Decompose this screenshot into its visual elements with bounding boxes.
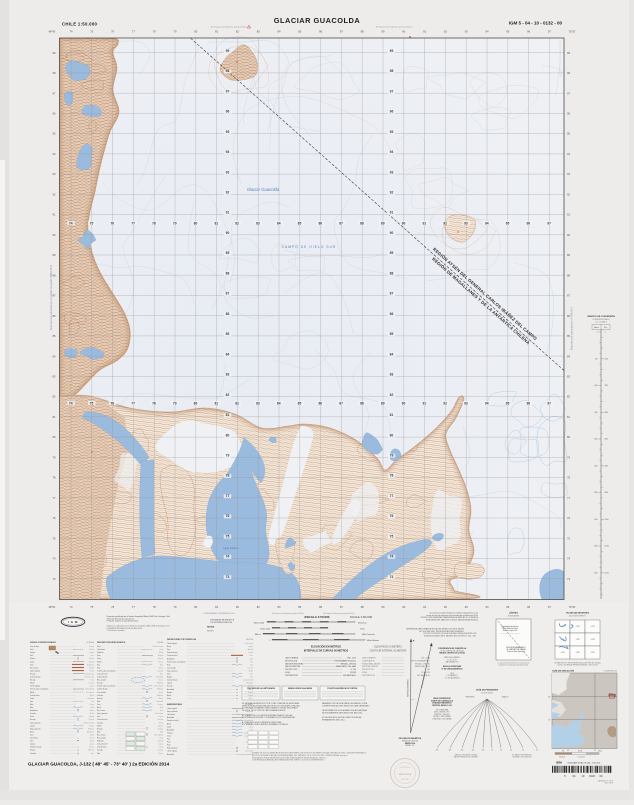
svg-text:81: 81 bbox=[226, 413, 230, 417]
svg-text:MODELO IGRF (WMM): MODELO IGRF (WMM) bbox=[433, 716, 451, 718]
svg-text:75: 75 bbox=[90, 605, 93, 609]
svg-text:PENDIENTE: PENDIENTE bbox=[466, 697, 475, 699]
svg-text:92: 92 bbox=[226, 191, 230, 195]
svg-text:89: 89 bbox=[382, 605, 385, 609]
svg-text:Muelle: Muelle bbox=[97, 725, 102, 727]
svg-text:3200: 3200 bbox=[605, 385, 609, 387]
svg-text:92: 92 bbox=[53, 192, 56, 196]
svg-text:73°30': 73°30' bbox=[568, 606, 576, 609]
svg-text:Mina: Mina bbox=[91, 707, 94, 709]
svg-text:86: 86 bbox=[226, 312, 230, 316]
svg-text:Canal: Canal bbox=[30, 698, 35, 700]
svg-text:81: 81 bbox=[214, 222, 218, 226]
svg-text:Población: Población bbox=[88, 728, 94, 730]
svg-text:GLACIAR GUACOLDA: GLACIAR GUACOLDA bbox=[274, 16, 361, 25]
svg-text:76: 76 bbox=[567, 516, 570, 520]
svg-text:13100: 13100 bbox=[605, 546, 609, 548]
svg-text:91: 91 bbox=[423, 30, 426, 34]
svg-text:94: 94 bbox=[485, 402, 489, 406]
svg-text:86: 86 bbox=[390, 312, 394, 316]
svg-text:89: 89 bbox=[381, 222, 385, 226]
svg-text:77: 77 bbox=[132, 30, 135, 34]
svg-text:Laguna: Laguna bbox=[89, 652, 94, 654]
svg-text:79: 79 bbox=[173, 402, 177, 406]
svg-text:Mina: Mina bbox=[97, 731, 100, 733]
svg-text:Cascada: Cascada bbox=[158, 670, 164, 672]
svg-text:84: 84 bbox=[53, 354, 56, 358]
svg-text:88: 88 bbox=[361, 30, 364, 34]
svg-text:Escarpe: Escarpe bbox=[158, 725, 163, 727]
svg-text:93: 93 bbox=[53, 172, 56, 176]
svg-text:84: 84 bbox=[278, 605, 281, 609]
svg-text:99: 99 bbox=[567, 51, 570, 55]
svg-text:85: 85 bbox=[226, 332, 230, 336]
svg-text:82: 82 bbox=[236, 605, 239, 609]
svg-text:83: 83 bbox=[257, 30, 260, 34]
svg-text:90: 90 bbox=[402, 222, 406, 226]
svg-text:J-122: J-122 bbox=[576, 626, 580, 628]
svg-text:79: 79 bbox=[174, 605, 177, 609]
svg-text:NORTE GEOGRÁFICO: NORTE GEOGRÁFICO bbox=[407, 678, 410, 696]
svg-text:99: 99 bbox=[53, 51, 56, 55]
svg-text:IGM 5 - 04 - 10 - 0132 - 00: IGM 5 - 04 - 10 - 0132 - 00 bbox=[509, 21, 563, 26]
svg-text:Laguna: Laguna bbox=[248, 646, 253, 648]
svg-text:GLACIAR GUACOLDA, J-132 ( 48°: GLACIAR GUACOLDA, J-132 ( 48° 45' - 73° … bbox=[28, 760, 170, 767]
svg-text:Pies: Pies bbox=[604, 327, 607, 329]
svg-text:LEY 2014 DEL IGM Y SUS MODIFIC: LEY 2014 DEL IGM Y SUS MODIFICACIONES VI… bbox=[419, 630, 464, 633]
svg-text:90: 90 bbox=[567, 233, 570, 237]
svg-text:96: 96 bbox=[226, 110, 230, 114]
svg-text:74: 74 bbox=[70, 30, 73, 34]
svg-text:Laguna: Laguna bbox=[167, 683, 172, 685]
svg-text:80: 80 bbox=[390, 433, 394, 437]
svg-text:78: 78 bbox=[153, 605, 156, 609]
svg-text:81: 81 bbox=[215, 605, 218, 609]
svg-text:Torre: Torre bbox=[250, 677, 253, 679]
svg-text:NOTAS: NOTAS bbox=[207, 625, 215, 628]
svg-text:GUÍA DE PENDIENTE: GUÍA DE PENDIENTE bbox=[476, 689, 499, 692]
svg-text:87: 87 bbox=[339, 402, 343, 406]
svg-text:94: 94 bbox=[53, 152, 56, 156]
svg-text:76: 76 bbox=[390, 514, 394, 518]
svg-text:84: 84 bbox=[277, 222, 281, 226]
svg-text:HOJAS ADYACENTES: HOJAS ADYACENTES bbox=[566, 612, 589, 615]
svg-text:Glaciar: Glaciar bbox=[159, 680, 164, 682]
svg-text:76: 76 bbox=[111, 30, 114, 34]
svg-text:ADJOINING SHEETS: ADJOINING SHEETS bbox=[569, 614, 586, 617]
svg-text:94: 94 bbox=[486, 605, 489, 609]
svg-text:77: 77 bbox=[53, 496, 56, 500]
svg-text:Camino de ripio: Camino de ripio bbox=[84, 673, 94, 675]
svg-text:92: 92 bbox=[443, 222, 447, 226]
svg-text:79: 79 bbox=[226, 454, 230, 458]
svg-text:86: 86 bbox=[567, 314, 570, 318]
svg-text:96: 96 bbox=[526, 402, 530, 406]
svg-text:81: 81 bbox=[390, 413, 394, 417]
svg-text:N° DE LÍNEA MAGNÉTICA: N° DE LÍNEA MAGNÉTICA bbox=[442, 667, 464, 670]
svg-text:91: 91 bbox=[226, 211, 230, 215]
svg-text:1:3.500.000: 1:3.500.000 bbox=[577, 756, 585, 758]
svg-text:89: 89 bbox=[382, 30, 385, 34]
svg-text:76: 76 bbox=[226, 514, 230, 518]
svg-text:IGM - 2010: IGM - 2010 bbox=[421, 658, 430, 660]
svg-text:83: 83 bbox=[257, 605, 260, 609]
svg-text:97: 97 bbox=[390, 89, 394, 93]
svg-text:DESCRIPCIÓN HIDROGRÁFICA: DESCRIPCIÓN HIDROGRÁFICA bbox=[97, 641, 126, 644]
svg-text:77: 77 bbox=[131, 222, 135, 226]
svg-text:73°30': 73°30' bbox=[568, 31, 576, 34]
svg-text:Sendero o huella: Sendero o huella bbox=[83, 722, 94, 724]
svg-text:74°: 74° bbox=[567, 750, 570, 752]
svg-text:Línea férrea: Línea férrea bbox=[246, 751, 254, 753]
svg-text:82: 82 bbox=[567, 395, 570, 399]
svg-text:Glaciar: Glaciar bbox=[90, 710, 95, 712]
svg-text:MAPOTECA: MAPOTECA bbox=[399, 773, 412, 776]
svg-text:48°52': 48°52' bbox=[48, 606, 56, 609]
svg-text:96: 96 bbox=[567, 111, 570, 115]
svg-text:SLOPE GUIDE: SLOPE GUIDE bbox=[481, 692, 493, 694]
svg-text:93: 93 bbox=[465, 30, 468, 34]
svg-text:Cascada: Cascada bbox=[97, 695, 103, 697]
svg-text:75: 75 bbox=[90, 222, 94, 226]
svg-text:Mina: Mina bbox=[30, 707, 33, 709]
svg-text:Cascada: Cascada bbox=[158, 719, 164, 721]
svg-text:83: 83 bbox=[390, 373, 394, 377]
svg-text:HORIZONTAL DATUM: HORIZONTAL DATUM bbox=[362, 662, 381, 665]
svg-text:Glaciar: Glaciar bbox=[159, 698, 164, 700]
svg-text:Glaciar: Glaciar bbox=[159, 753, 164, 755]
svg-text:Yardas 1000: Yardas 1000 bbox=[260, 628, 270, 630]
svg-text:500: 500 bbox=[595, 358, 598, 360]
svg-text:90: 90 bbox=[390, 231, 394, 235]
svg-text:79: 79 bbox=[173, 222, 177, 226]
svg-text:Casa aislada: Casa aislada bbox=[30, 646, 39, 648]
svg-text:73: 73 bbox=[53, 577, 56, 581]
svg-text:82: 82 bbox=[236, 30, 239, 34]
svg-text:84: 84 bbox=[226, 352, 230, 356]
svg-text:94: 94 bbox=[567, 152, 570, 156]
svg-text:Pozo: Pozo bbox=[167, 745, 171, 747]
svg-text:Bosque: Bosque bbox=[89, 747, 94, 749]
svg-text:80: 80 bbox=[53, 435, 56, 439]
svg-text:76: 76 bbox=[111, 605, 114, 609]
svg-text:Cascada: Cascada bbox=[89, 719, 95, 721]
svg-text:97: 97 bbox=[548, 605, 551, 609]
svg-text:83: 83 bbox=[53, 374, 56, 378]
svg-text:Muelle: Muelle bbox=[159, 652, 163, 654]
svg-text:Reproducción autorizada por el: Reproducción autorizada por el IGM 2014 bbox=[571, 307, 574, 350]
svg-text:11400: 11400 bbox=[605, 519, 609, 521]
svg-text:84: 84 bbox=[567, 354, 570, 358]
svg-text:Roca aislada: Roca aislada bbox=[97, 738, 106, 740]
svg-text:Tranque: Tranque bbox=[89, 646, 94, 648]
svg-text:MEAN SEA LEVEL: MEAN SEA LEVEL bbox=[415, 665, 430, 668]
svg-text:90: 90 bbox=[402, 30, 405, 34]
svg-text:Faro: Faro bbox=[91, 701, 94, 703]
svg-text:95: 95 bbox=[506, 605, 509, 609]
svg-text:86: 86 bbox=[319, 30, 322, 34]
svg-text:89: 89 bbox=[567, 253, 570, 257]
svg-text:93: 93 bbox=[464, 222, 468, 226]
svg-text:(El espacio de Esquema queda 2: (El espacio de Esquema queda 2014) a bbox=[211, 27, 248, 29]
svg-text:78: 78 bbox=[152, 402, 156, 406]
svg-text:Pozo: Pozo bbox=[97, 646, 101, 648]
svg-text:IGM - 2010: IGM - 2010 bbox=[347, 658, 356, 660]
svg-text:Mina: Mina bbox=[250, 708, 253, 710]
svg-text:Tranque: Tranque bbox=[89, 667, 94, 669]
svg-text:PROYECCIÓN: PROYECCIÓN bbox=[285, 668, 298, 671]
svg-text:Torre: Torre bbox=[160, 710, 163, 712]
svg-text:82: 82 bbox=[390, 393, 394, 397]
svg-text:86: 86 bbox=[318, 402, 322, 406]
svg-text:Cascada: Cascada bbox=[248, 667, 254, 669]
svg-text:Laguna: Laguna bbox=[89, 744, 94, 746]
svg-text:95: 95 bbox=[506, 30, 509, 34]
svg-text:74: 74 bbox=[390, 555, 394, 559]
svg-text:93: 93 bbox=[465, 605, 468, 609]
svg-text:91: 91 bbox=[422, 402, 426, 406]
svg-text:77: 77 bbox=[132, 605, 135, 609]
svg-text:94: 94 bbox=[485, 222, 489, 226]
svg-text:88: 88 bbox=[360, 222, 364, 226]
svg-text:97: 97 bbox=[547, 222, 551, 226]
svg-text:77: 77 bbox=[226, 494, 230, 498]
svg-text:Tranque: Tranque bbox=[89, 725, 94, 727]
svg-text:VAR. ANUAL 8' E: VAR. ANUAL 8' E bbox=[445, 661, 459, 664]
svg-text:Bosque: Bosque bbox=[167, 677, 172, 679]
svg-text:Pozo: Pozo bbox=[97, 667, 101, 669]
svg-text:Cascada: Cascada bbox=[89, 683, 95, 685]
svg-text:Torre: Torre bbox=[91, 753, 94, 755]
svg-text:1 pie = 0,3048 m: 1 pie = 0,3048 m bbox=[595, 321, 608, 323]
svg-text:Glaciar: Glaciar bbox=[159, 661, 164, 663]
svg-text:77: 77 bbox=[567, 496, 570, 500]
svg-text:95: 95 bbox=[567, 132, 570, 136]
svg-text:79: 79 bbox=[390, 454, 394, 458]
svg-text:SIMBOLOGÍA DE GLACIARES: SIMBOLOGÍA DE GLACIARES bbox=[288, 687, 313, 690]
svg-text:Población: Población bbox=[157, 695, 163, 697]
svg-text:98: 98 bbox=[53, 71, 56, 75]
svg-text:Kilómetros: Kilómetros bbox=[358, 621, 367, 624]
svg-text:91: 91 bbox=[53, 213, 56, 217]
svg-text:1500: 1500 bbox=[594, 412, 598, 414]
svg-text:Casa aislada: Casa aislada bbox=[97, 692, 106, 694]
svg-text:78: 78 bbox=[390, 474, 394, 478]
svg-text:CORRESPONDE AL NIVEL MEDIO DEL: CORRESPONDE AL NIVEL MEDIO DEL MAR OBSER… bbox=[322, 704, 370, 707]
svg-text:74: 74 bbox=[567, 557, 570, 561]
svg-text:J-123: J-123 bbox=[591, 626, 595, 628]
svg-text:Metros 1000: Metros 1000 bbox=[254, 621, 264, 624]
svg-text:· GLACIAR GUACOLDA - 1:50.0: · GLACIAR GUACOLDA - 1:50.000 bbox=[566, 761, 601, 764]
svg-text:Cascada: Cascada bbox=[97, 722, 103, 724]
svg-text:99: 99 bbox=[226, 49, 230, 53]
svg-text:4900: 4900 bbox=[605, 412, 609, 414]
svg-text:Mina: Mina bbox=[30, 704, 33, 706]
svg-text:Casa aislada: Casa aislada bbox=[167, 667, 176, 669]
svg-text:88: 88 bbox=[53, 273, 56, 277]
svg-text:85: 85 bbox=[390, 332, 394, 336]
svg-text:U.T.M.: U.T.M. bbox=[351, 669, 357, 671]
svg-text:82: 82 bbox=[53, 395, 56, 399]
svg-text:89: 89 bbox=[53, 253, 56, 257]
svg-text:85: 85 bbox=[298, 30, 301, 34]
svg-text:2500: 2500 bbox=[594, 465, 598, 467]
svg-text:Yards: Yards bbox=[360, 628, 365, 630]
svg-text:85: 85 bbox=[567, 334, 570, 338]
svg-text:84: 84 bbox=[278, 30, 281, 34]
svg-text:79: 79 bbox=[53, 455, 56, 459]
svg-text:IGM: IGM bbox=[556, 761, 562, 765]
svg-text:Población: Población bbox=[88, 750, 94, 752]
svg-text:J-141: J-141 bbox=[561, 652, 565, 654]
svg-text:Millas 1: Millas 1 bbox=[255, 634, 261, 636]
svg-text:97: 97 bbox=[547, 402, 551, 406]
svg-text:97: 97 bbox=[53, 91, 56, 95]
svg-text:Escarpe: Escarpe bbox=[89, 658, 94, 660]
svg-text:DEFINICIONES TOPOGRÁFICAS: DEFINICIONES TOPOGRÁFICAS bbox=[167, 638, 197, 641]
svg-text:ELEVACIÓN EN METROS: ELEVACIÓN EN METROS bbox=[311, 646, 341, 649]
svg-text:96: 96 bbox=[527, 605, 530, 609]
svg-text:Laguna: Laguna bbox=[30, 725, 35, 727]
svg-text:COORDENADAS UTM EN AZUL 2014 a: COORDENADAS UTM EN AZUL 2014 a bbox=[203, 612, 235, 615]
svg-text:92: 92 bbox=[444, 605, 447, 609]
svg-text:●: ● bbox=[236, 689, 237, 691]
svg-text:SIGNOS CONVENCIONALES: SIGNOS CONVENCIONALES bbox=[30, 641, 56, 644]
svg-text:73: 73 bbox=[567, 577, 570, 581]
svg-text:Canal: Canal bbox=[167, 726, 172, 728]
svg-text:Cerco: Cerco bbox=[249, 655, 253, 657]
svg-text:Cascada: Cascada bbox=[97, 750, 103, 752]
svg-text:Casa aislada: Casa aislada bbox=[245, 643, 253, 645]
svg-text:●: ● bbox=[236, 698, 237, 700]
svg-text:⚑: ⚑ bbox=[77, 740, 79, 743]
svg-text:SEGÚN IMÁGENES SATELITALES DEL: SEGÚN IMÁGENES SATELITALES DEL AÑO 2013. bbox=[322, 711, 363, 714]
svg-text:Población: Población bbox=[97, 652, 104, 654]
svg-text:Pozo: Pozo bbox=[167, 664, 171, 666]
svg-text:94: 94 bbox=[226, 150, 230, 154]
svg-text:95: 95 bbox=[390, 130, 394, 134]
svg-text:92: 92 bbox=[444, 30, 447, 34]
svg-text:J-132: J-132 bbox=[576, 639, 580, 641]
svg-text:80: 80 bbox=[194, 30, 197, 34]
svg-text:Población: Población bbox=[97, 741, 104, 743]
svg-text:Bosque: Bosque bbox=[30, 750, 35, 752]
svg-text:81: 81 bbox=[215, 30, 218, 34]
svg-text:78: 78 bbox=[226, 474, 230, 478]
svg-text:74: 74 bbox=[53, 557, 56, 561]
svg-text:Mina: Mina bbox=[97, 701, 100, 703]
svg-text:82: 82 bbox=[235, 402, 239, 406]
svg-text:IGM SANTIAGO: IGM SANTIAGO bbox=[343, 674, 357, 677]
svg-text:DATUM VERTICAL: DATUM VERTICAL bbox=[285, 665, 301, 668]
svg-text:Población: Población bbox=[157, 689, 163, 691]
svg-text:87: 87 bbox=[339, 222, 343, 226]
svg-text:91: 91 bbox=[390, 211, 394, 215]
svg-text:96: 96 bbox=[527, 30, 530, 34]
svg-text:18 SUR: 18 SUR bbox=[350, 672, 357, 674]
svg-text:Muelle: Muelle bbox=[90, 713, 94, 715]
svg-text:VERTICAL DATUM: VERTICAL DATUM bbox=[362, 665, 378, 668]
svg-text:CARTOGRAFÍA: CARTOGRAFÍA bbox=[285, 657, 299, 660]
svg-text:Cascada: Cascada bbox=[30, 753, 36, 755]
svg-text:87: 87 bbox=[340, 30, 343, 34]
svg-text:●: ● bbox=[146, 747, 147, 749]
svg-text:80: 80 bbox=[194, 402, 198, 406]
svg-text:ZONE: ZONE bbox=[362, 672, 368, 674]
svg-text:88: 88 bbox=[390, 271, 394, 275]
svg-text:1600: 1600 bbox=[605, 358, 609, 360]
svg-text:Laguna: Laguna bbox=[158, 744, 163, 746]
svg-text:78: 78 bbox=[53, 476, 56, 480]
svg-text:Cascada: Cascada bbox=[158, 750, 164, 752]
svg-text:4500: 4500 bbox=[594, 572, 598, 574]
svg-text:PARA EL CENTRO DE LA HOJA: PARA EL CENTRO DE LA HOJA bbox=[439, 652, 465, 655]
svg-text:81: 81 bbox=[53, 415, 56, 419]
svg-text:Torre: Torre bbox=[250, 674, 253, 676]
svg-text:74: 74 bbox=[69, 222, 73, 226]
svg-text:Pozo: Pozo bbox=[167, 742, 171, 744]
svg-text:77: 77 bbox=[390, 494, 394, 498]
svg-text:GUÍA DE UBICACIÓN: GUÍA DE UBICACIÓN bbox=[552, 670, 574, 673]
svg-text:92: 92 bbox=[443, 402, 447, 406]
svg-text:Laguna: Laguna bbox=[248, 652, 253, 654]
svg-text:(El espacio de Esquema queda 2: (El espacio de Esquema queda 2014) b bbox=[272, 613, 304, 615]
svg-text:1000: 1000 bbox=[594, 385, 598, 387]
svg-text:(El espacio de Esquema queda 2: (El espacio de Esquema queda 2014) a bbox=[376, 27, 413, 29]
svg-text:FOTOGRAMÉTRICA 2011: FOTOGRAMÉTRICA 2011 bbox=[335, 659, 356, 662]
svg-text:17° 30' (ALCANCE): 17° 30' (ALCANCE) bbox=[445, 676, 460, 679]
svg-text:J-142: J-142 bbox=[576, 652, 580, 654]
svg-text:1: 1 bbox=[269, 640, 270, 642]
svg-text:Glaciar: Glaciar bbox=[90, 695, 95, 697]
svg-text:8200: 8200 bbox=[605, 465, 609, 467]
svg-text:95: 95 bbox=[53, 132, 56, 136]
svg-text:LÍMITES: LÍMITES bbox=[509, 612, 518, 615]
svg-text:J-143: J-143 bbox=[591, 652, 595, 654]
svg-text:94: 94 bbox=[390, 150, 394, 154]
svg-text:78: 78 bbox=[152, 222, 156, 226]
svg-text:50 Km: 50 Km bbox=[578, 751, 583, 753]
svg-text:▴: ▴ bbox=[237, 691, 238, 694]
svg-text:80: 80 bbox=[194, 605, 197, 609]
svg-text:90: 90 bbox=[402, 605, 405, 609]
svg-text:82: 82 bbox=[226, 393, 230, 397]
svg-text:80: 80 bbox=[226, 433, 230, 437]
svg-text:83: 83 bbox=[226, 373, 230, 377]
svg-text:Millas Náuticas: Millas Náuticas bbox=[367, 639, 379, 642]
svg-text:Muelle: Muelle bbox=[249, 670, 253, 672]
svg-text:CAMPO DE HIELO SUR: CAMPO DE HIELO SUR bbox=[282, 245, 337, 249]
svg-text:96: 96 bbox=[53, 111, 56, 115]
svg-text:80: 80 bbox=[567, 435, 570, 439]
svg-text:86: 86 bbox=[318, 222, 322, 226]
svg-text:72°: 72° bbox=[594, 750, 597, 752]
svg-text:75: 75 bbox=[390, 534, 394, 538]
svg-text:89: 89 bbox=[390, 251, 394, 255]
svg-text:88: 88 bbox=[226, 271, 230, 275]
svg-text:Miles: Miles bbox=[598, 751, 602, 753]
svg-text:Laguna: Laguna bbox=[248, 695, 253, 697]
svg-text:2000: 2000 bbox=[594, 439, 598, 441]
svg-text:87: 87 bbox=[226, 292, 230, 296]
svg-text:96: 96 bbox=[390, 110, 394, 114]
svg-text:98: 98 bbox=[390, 69, 394, 73]
svg-text:3000: 3000 bbox=[594, 492, 598, 494]
svg-text:6500: 6500 bbox=[605, 439, 609, 441]
svg-text:BOUNDARIES: BOUNDARIES bbox=[508, 614, 520, 617]
svg-text:97: 97 bbox=[226, 89, 230, 93]
svg-text:89: 89 bbox=[381, 402, 385, 406]
